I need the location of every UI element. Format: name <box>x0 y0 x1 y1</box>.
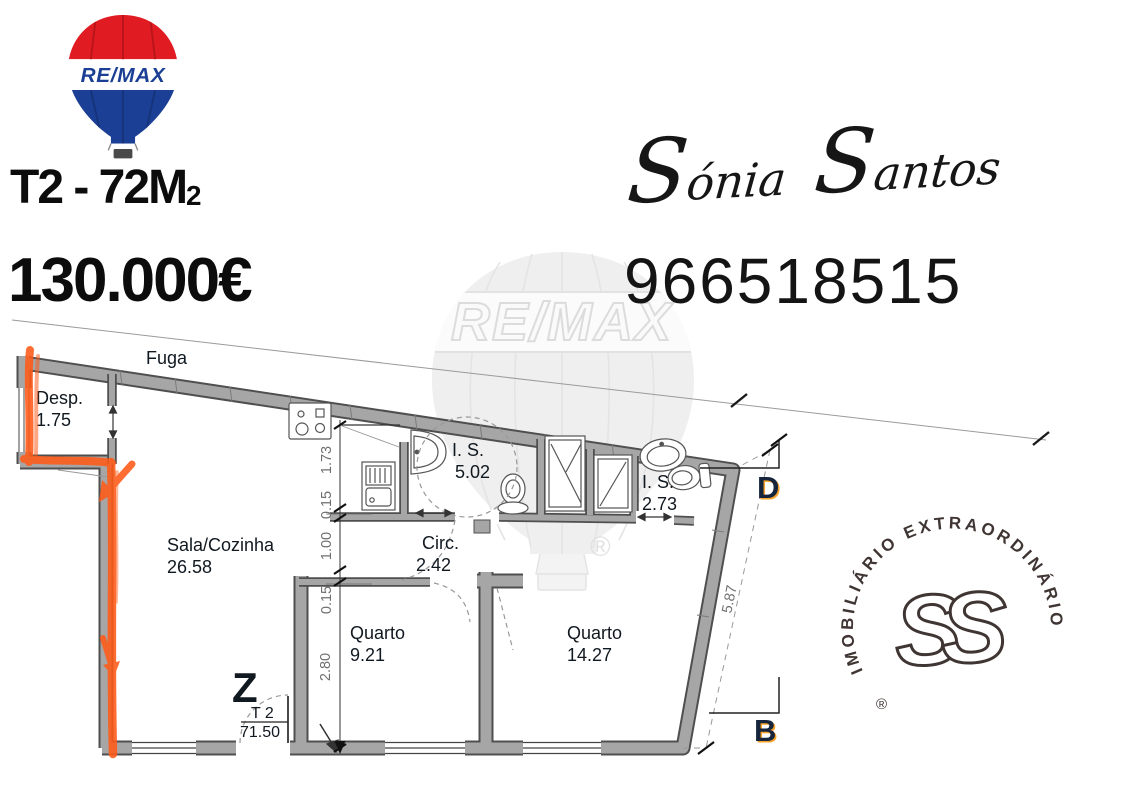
listing-title-sub: 2 <box>186 180 201 211</box>
shower-icon <box>594 455 632 512</box>
room-desp-label: Desp. <box>36 388 83 408</box>
stove-icon <box>289 403 331 439</box>
entrance-z-marker: Z <box>232 664 258 711</box>
room-is2-label: I. S. <box>642 472 674 492</box>
dim-quarto1-depth: 2.80 <box>318 653 334 681</box>
dim-pass: 1.00 <box>319 532 335 560</box>
dim-wall1: 0.15 <box>319 491 335 519</box>
total-type-label: T 2 <box>251 705 274 722</box>
total-area-value: 71.50 <box>240 724 280 741</box>
poster-page: RE/MAX ® <box>0 0 1128 800</box>
listing-title-main: T2 - 72M <box>10 161 186 214</box>
balloon-basket-icon <box>108 144 137 159</box>
dim-wall2: 0.15 <box>319 586 335 614</box>
listing-title: T2 - 72M2 <box>10 160 202 215</box>
room-quarto2-area: 14.27 <box>567 645 612 665</box>
remax-balloon-logo: RE/MAX <box>56 10 190 162</box>
listing-price: 130.000€ <box>8 245 251 316</box>
watermark-registered-icon: ® <box>590 531 611 562</box>
room-sala-label: Sala/Cozinha <box>167 535 275 555</box>
dim-kitchen: 1.73 <box>319 446 335 474</box>
fuga-label: Fuga <box>146 348 188 368</box>
section-b-label: B <box>754 713 776 748</box>
logo-brand-text: RE/MAX <box>81 64 166 87</box>
agent-phone: 966518515 <box>624 244 962 318</box>
room-quarto2-label: Quarto <box>567 623 622 643</box>
room-is1-label: I. S. <box>452 440 484 460</box>
dim-right-wall: 5.87 <box>720 584 741 615</box>
section-d-label: D <box>757 470 779 505</box>
room-sala-area: 26.58 <box>167 557 212 577</box>
kitchen-sink-icon <box>362 462 395 510</box>
counter-line <box>342 426 399 447</box>
agent-first-name: Sónia <box>624 113 792 224</box>
room-circ-label: Circ. <box>422 533 459 553</box>
room-circ-area: 2.42 <box>416 555 451 575</box>
room-is2-area: 2.73 <box>642 494 677 514</box>
stamp-registered-icon: ® <box>876 696 887 713</box>
stamp-monogram-s2: S <box>938 570 1010 685</box>
room-desp-area: 1.75 <box>36 410 71 430</box>
agent-last-name: Santos <box>811 102 1006 214</box>
room-quarto1-label: Quarto <box>350 623 405 643</box>
washbasin-icon <box>411 430 446 474</box>
room-is1-area: 5.02 <box>455 462 490 482</box>
agency-stamp: IMOBILIÁRIO EXTRAORDINÁRIO ® S S <box>838 513 1067 713</box>
shower-icon <box>545 436 585 511</box>
room-quarto1-area: 9.21 <box>350 645 385 665</box>
